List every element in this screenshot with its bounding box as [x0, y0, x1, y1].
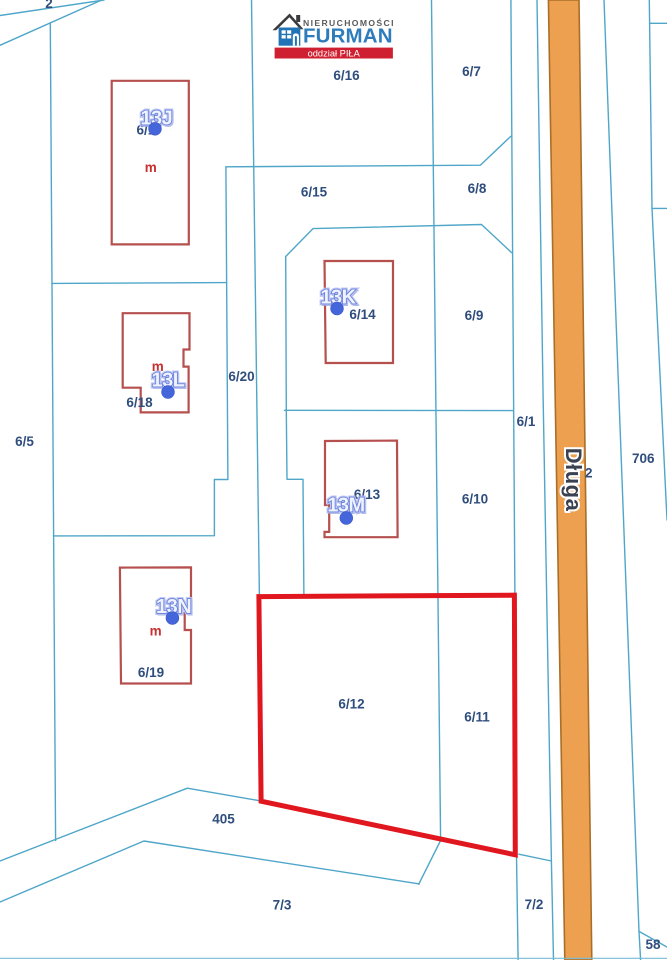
- svg-text:6/1: 6/1: [517, 414, 536, 429]
- svg-text:2: 2: [45, 0, 53, 11]
- svg-text:m: m: [145, 160, 157, 175]
- svg-text:6/7: 6/7: [462, 64, 481, 79]
- svg-text:FURMAN: FURMAN: [303, 25, 393, 48]
- svg-text:6/11: 6/11: [464, 710, 490, 725]
- svg-text:Długa: Długa: [561, 448, 586, 512]
- svg-text:6/16: 6/16: [333, 68, 360, 83]
- svg-text:6/18: 6/18: [126, 395, 153, 410]
- svg-text:6/8: 6/8: [468, 181, 487, 196]
- svg-text:6/10: 6/10: [462, 492, 488, 507]
- svg-text:6/15: 6/15: [301, 184, 328, 199]
- svg-text:oddział PIŁA: oddział PIŁA: [308, 48, 361, 58]
- svg-text:m: m: [150, 624, 162, 639]
- svg-text:6/5: 6/5: [15, 434, 34, 449]
- svg-text:405: 405: [212, 812, 235, 827]
- svg-text:58: 58: [645, 937, 661, 952]
- svg-text:6/9: 6/9: [465, 308, 484, 323]
- svg-text:706: 706: [632, 451, 655, 466]
- svg-text:7/2: 7/2: [525, 897, 544, 912]
- svg-text:6/20: 6/20: [228, 369, 254, 384]
- svg-text:7/3: 7/3: [273, 898, 292, 913]
- svg-text:6/12: 6/12: [338, 697, 364, 712]
- svg-text:6/19: 6/19: [138, 665, 164, 680]
